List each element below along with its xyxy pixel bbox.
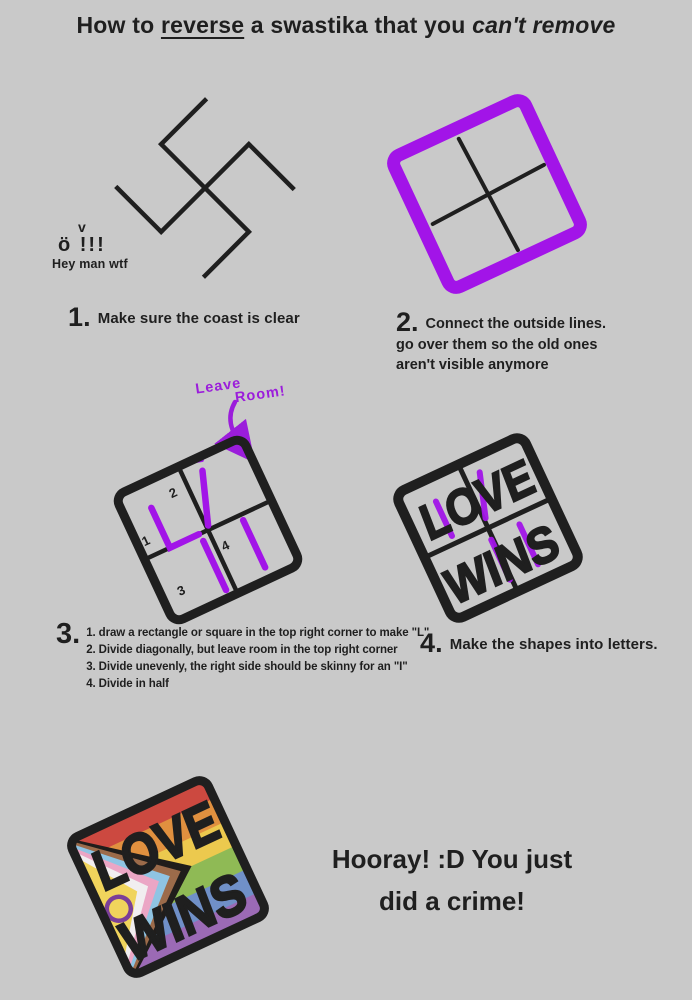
step1-caption-text: Make sure the coast is clear <box>98 310 300 327</box>
step4-caption: 4.Make the shapes into letters. <box>420 628 658 659</box>
step4-number: 4. <box>420 628 443 658</box>
divided-square-diagram: 1 2 3 4 <box>100 428 320 633</box>
step1-caption: 1.Make sure the coast is clear <box>68 302 300 333</box>
step2-caption-line1: Connect the outside lines. <box>426 316 606 332</box>
shocked-face-icon: ö !!! <box>58 235 172 256</box>
purple-bottom-right-line <box>243 520 265 567</box>
quadrant-cross <box>120 442 295 617</box>
step2-caption: 2.Connect the outside lines. go over the… <box>396 312 636 375</box>
finale-caption: Hooray! :D You just did a crime! <box>312 838 592 922</box>
bystander-face: v ö !!! Hey man wtf <box>52 220 172 271</box>
step1-number: 1. <box>68 302 91 332</box>
title-emphasis: can't remove <box>472 12 615 38</box>
title-prefix: How to <box>77 12 161 38</box>
quadrant-label-4: 4 <box>219 537 233 554</box>
rainbow-love-wins-mural: LOVE WINS <box>43 760 293 995</box>
step3-substep-2: 2. Divide diagonally, but leave room in … <box>86 642 429 659</box>
quadrant-label-3: 3 <box>175 582 188 599</box>
step2-caption-line3: aren't visible anymore <box>396 355 636 375</box>
purple-square-drawing <box>362 88 612 303</box>
step2-number: 2. <box>396 307 419 337</box>
step4-caption-text: Make the shapes into letters. <box>450 636 658 653</box>
page-title: How to reverse a swastika that you can't… <box>0 12 692 39</box>
bystander-eyebrow: v <box>78 220 172 235</box>
love-wins-sketch: LOVE WINS <box>378 428 598 633</box>
finale-caption-line1: Hooray! :D You just <box>312 838 592 880</box>
step3-number: 3. <box>56 620 80 649</box>
step3-substep-4: 4. Divide in half <box>86 676 429 693</box>
step2-caption-line2: go over them so the old ones <box>396 335 636 355</box>
finale-caption-line2: did a crime! <box>312 880 592 922</box>
title-underlined-word: reverse <box>161 12 244 38</box>
comic-page: How to reverse a swastika that you can't… <box>0 0 692 1000</box>
quadrant-label-2: 2 <box>167 484 180 501</box>
step3-substep-3: 3. Divide unevenly, the right side shoul… <box>86 659 429 676</box>
purple-L-line <box>151 494 199 547</box>
step3-caption: 3. 1. draw a rectangle or square in the … <box>56 620 429 693</box>
bystander-speech: Hey man wtf <box>52 258 172 271</box>
title-middle: a swastika that you <box>244 12 472 38</box>
